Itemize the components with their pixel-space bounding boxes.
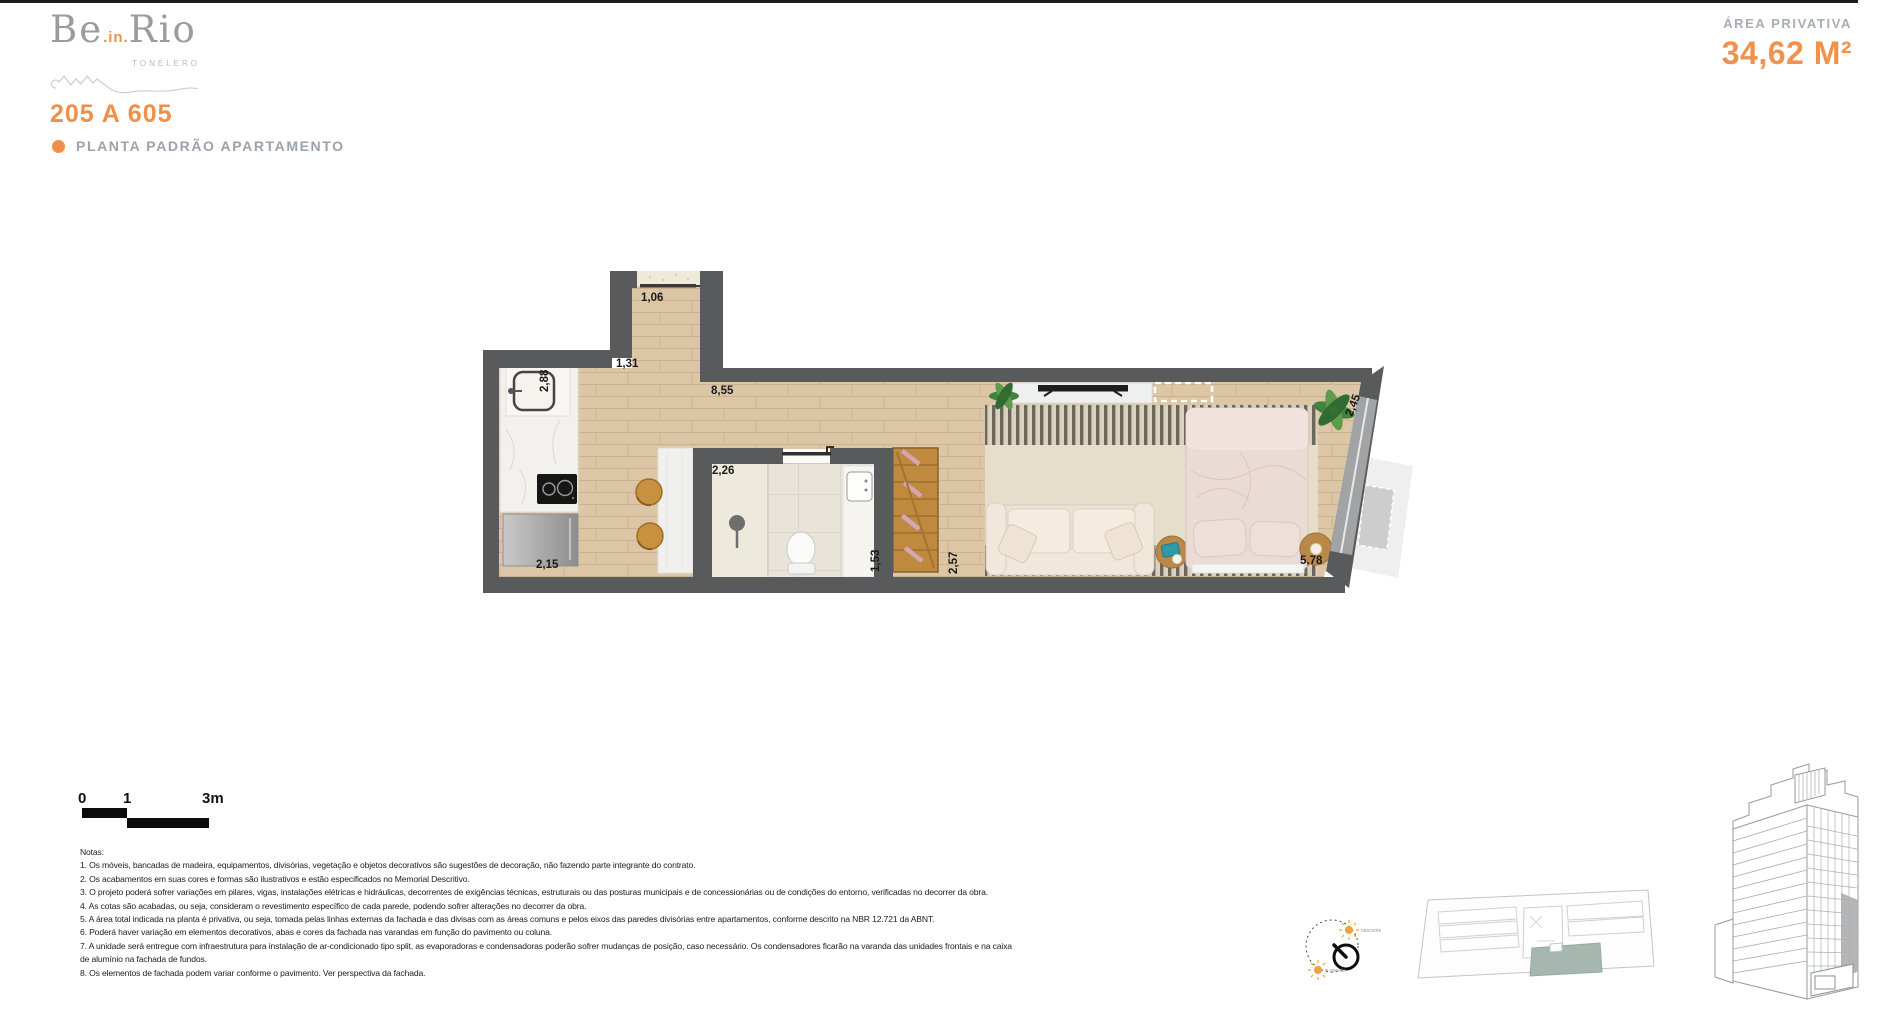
scale-tick-0: 0 xyxy=(78,790,86,807)
dim-bathroom-depth: 1,53 xyxy=(870,550,882,572)
logo-in: .in. xyxy=(103,29,129,46)
dim-kitchen-front: 2,15 xyxy=(536,559,559,571)
sliding-door xyxy=(782,447,834,463)
compass: nascente poente xyxy=(1288,908,1398,990)
plan-type-label: PLANTA PADRÃO APARTAMENTO xyxy=(76,138,345,154)
dim-living-top: 8,55 xyxy=(711,385,734,397)
dim-entry-door: 1,06 xyxy=(641,292,663,304)
bullet-icon xyxy=(52,140,65,153)
bed xyxy=(1186,408,1308,573)
scale-tick-1: 1 xyxy=(123,790,131,807)
sunrise-sun-icon xyxy=(1339,920,1359,940)
note-item: 3. O projeto poderá sofrer variações em … xyxy=(80,886,1015,899)
scale-segment xyxy=(82,808,127,818)
note-item: 7. A unidade será entregue com infraestr… xyxy=(80,940,1015,967)
sofa xyxy=(986,503,1154,575)
area-value: 34,62 M² xyxy=(1722,35,1852,72)
highlighted-unit xyxy=(1530,943,1602,976)
bathroom xyxy=(712,464,875,577)
notes-title: Notas: xyxy=(80,846,1015,859)
note-item: 6. Poderá haver variação em elementos de… xyxy=(80,926,1015,939)
logo-be: Be xyxy=(50,8,103,51)
note-item: 8. Os elementos de fachada podem variar … xyxy=(80,967,1015,980)
note-item: 1. Os móveis, bancadas de madeira, equip… xyxy=(80,859,1015,872)
sunset-sun-icon xyxy=(1308,960,1328,980)
cooktop xyxy=(537,474,577,504)
page-title-unit-range: 205 A 605 xyxy=(50,100,173,129)
plan-type-row: PLANTA PADRÃO APARTAMENTO xyxy=(52,138,345,154)
dim-kitchen-side: 2,88 xyxy=(539,369,551,392)
dim-entry-hall: 1,31 xyxy=(616,358,639,370)
note-item: 2. Os acabamentos em suas cores e formas… xyxy=(80,873,1015,886)
window-top-edge xyxy=(0,0,1858,3)
stool xyxy=(637,523,663,549)
sunset-label: poente xyxy=(1330,968,1346,974)
toilet xyxy=(787,532,815,574)
dining-counter xyxy=(658,448,693,573)
logo-rio: Rio xyxy=(129,8,197,51)
area-label: ÁREA PRIVATIVA xyxy=(1722,16,1852,31)
scale-bar: 0 1 3m xyxy=(78,790,298,840)
note-item: 5. A área total indicada na planta é pri… xyxy=(80,913,1015,926)
shelf-unit xyxy=(893,448,938,572)
note-item: 4. As cotas são acabadas, ou seja, consi… xyxy=(80,900,1015,913)
mountain-skyline-icon xyxy=(50,68,200,94)
building-elevation xyxy=(1695,733,1895,1018)
logo-subtitle: TONELERO xyxy=(50,59,200,68)
sunrise-label: nascente xyxy=(1361,928,1382,934)
dim-bathroom-width: 2,26 xyxy=(712,465,734,477)
brand-logo: Be.in.Rio TONELERO xyxy=(50,10,270,99)
dim-shelf-wall: 2,57 xyxy=(948,552,960,574)
dim-bedroom-front: 5,78 xyxy=(1300,555,1323,567)
stool xyxy=(636,479,662,505)
private-area-block: ÁREA PRIVATIVA 34,62 M² xyxy=(1722,16,1852,72)
brand-logo-text: Be.in.Rio xyxy=(50,10,270,58)
key-plan xyxy=(1412,886,1657,986)
floor-plan: 1,06 1,31 2,88 8,55 2,26 2,15 1,53 2,57 … xyxy=(430,225,1430,625)
side-table xyxy=(1156,536,1188,568)
notes-block: Notas: 1. Os móveis, bancadas de madeira… xyxy=(80,846,1015,980)
scale-segment xyxy=(127,818,209,828)
scale-tick-3m: 3m xyxy=(202,790,224,807)
tv-console xyxy=(1013,383,1152,403)
north-arrow-icon xyxy=(1334,945,1358,969)
